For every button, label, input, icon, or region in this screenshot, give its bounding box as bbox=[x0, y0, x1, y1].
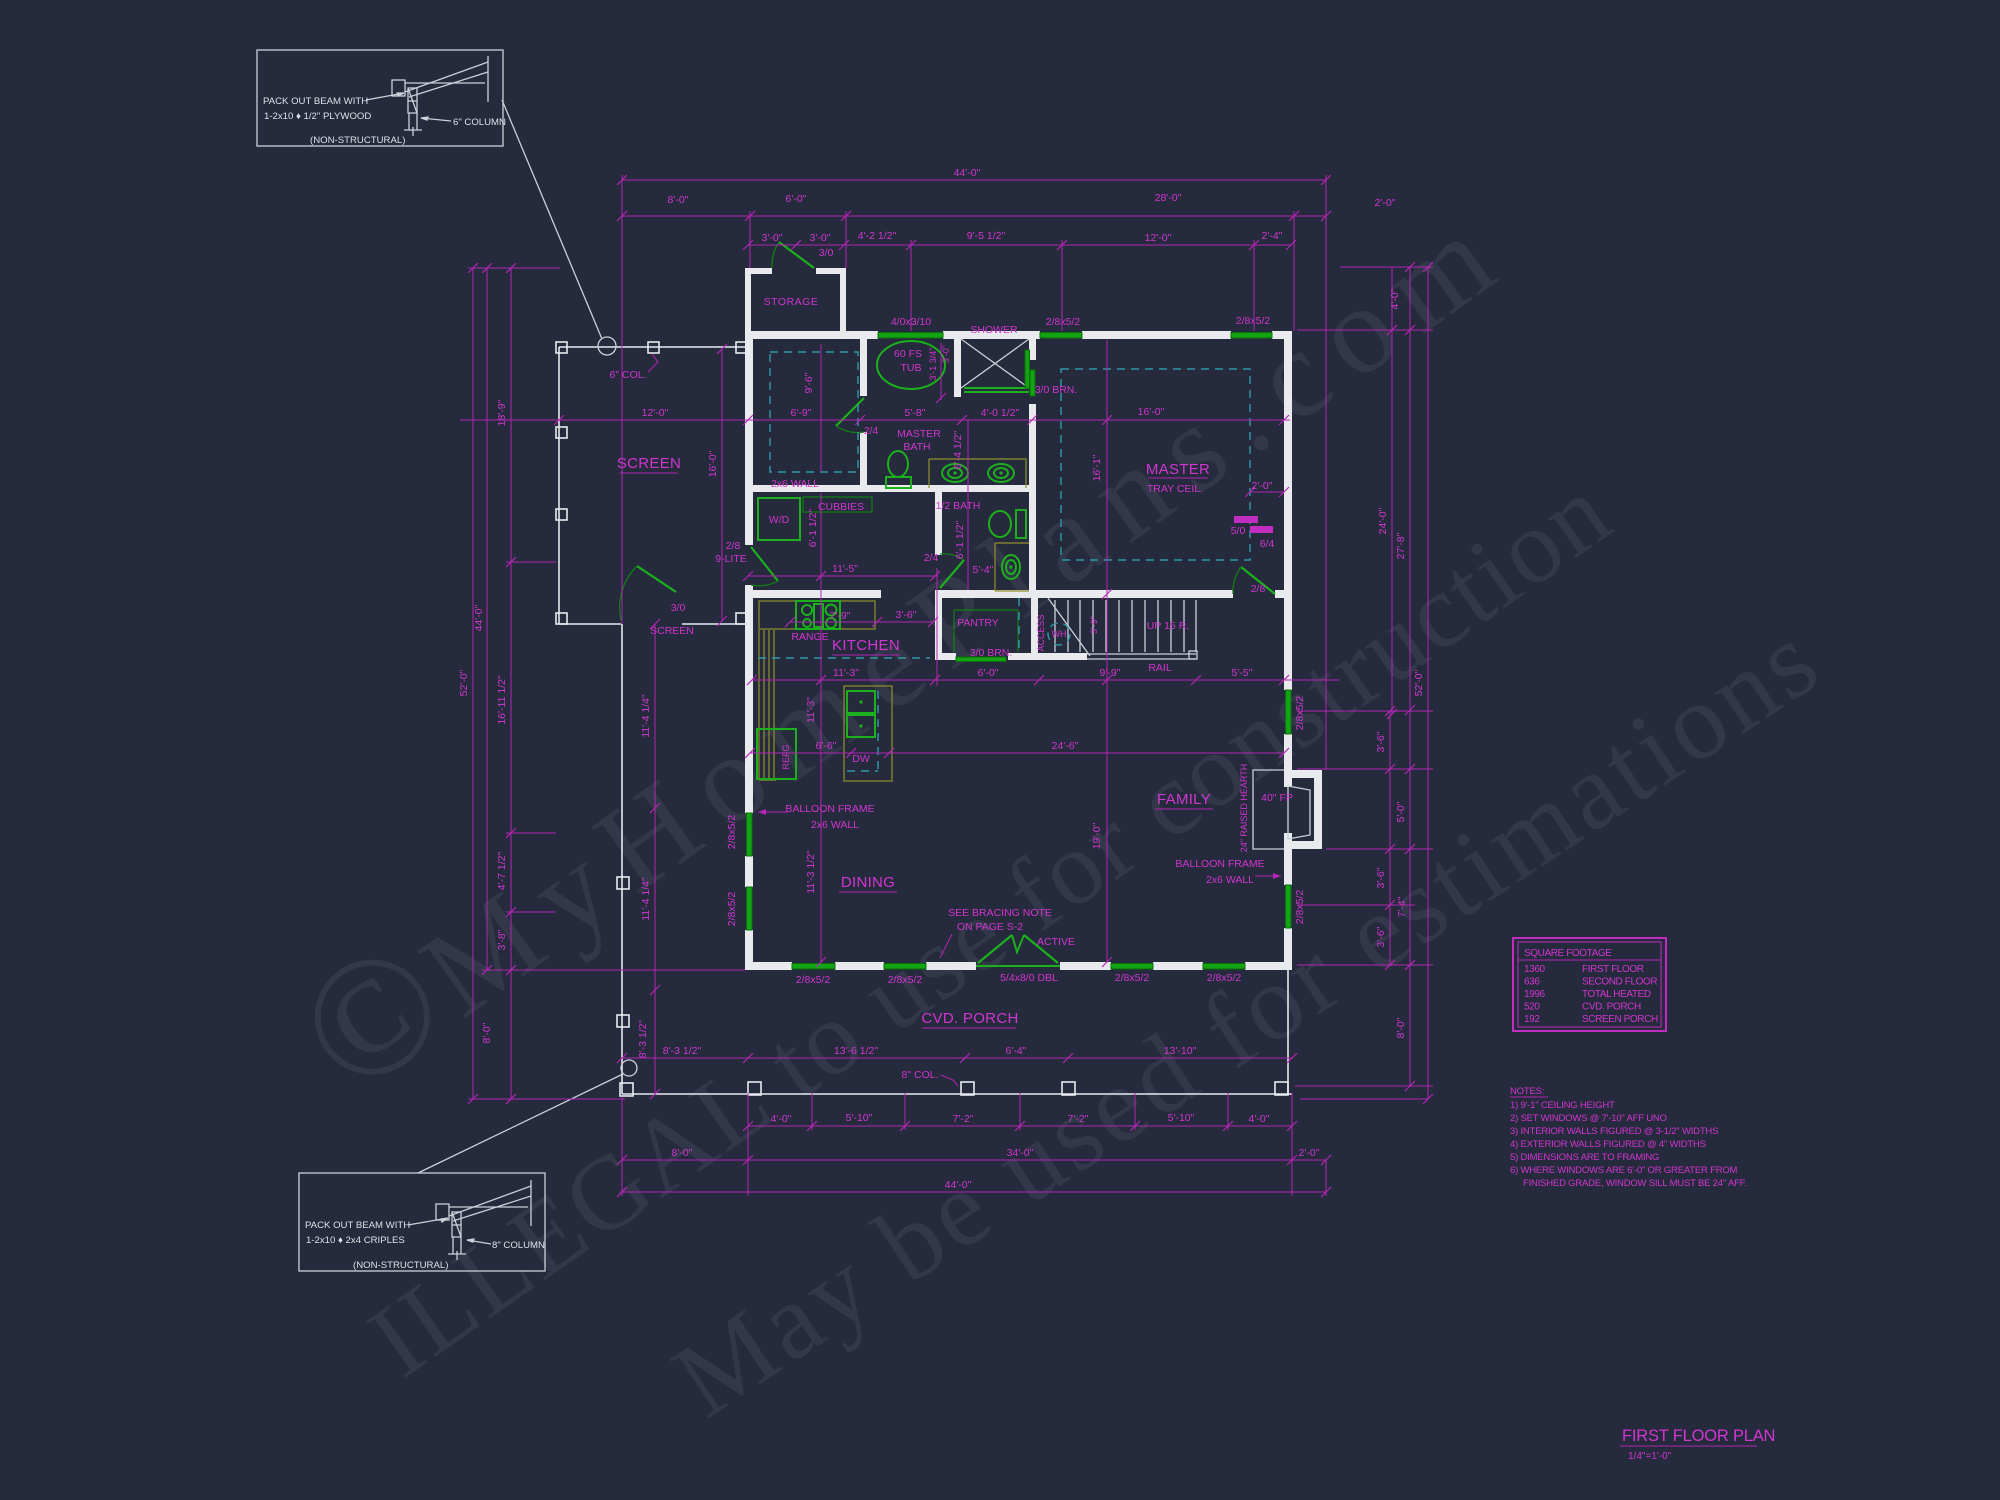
svg-text:2/8x5/2: 2/8x5/2 bbox=[1236, 315, 1271, 327]
svg-text:52'-0": 52'-0" bbox=[458, 669, 470, 696]
svg-text:FINISHED GRADE, WINDOW SILL MU: FINISHED GRADE, WINDOW SILL MUST BE 24" … bbox=[1523, 1178, 1747, 1189]
svg-text:(NON-STRUCTURAL): (NON-STRUCTURAL) bbox=[310, 135, 405, 146]
svg-text:6'-1 1/2": 6'-1 1/2" bbox=[954, 521, 966, 560]
svg-text:BALLOON FRAME: BALLOON FRAME bbox=[1175, 858, 1264, 870]
svg-text:CVD. PORCH: CVD. PORCH bbox=[921, 1010, 1018, 1027]
svg-text:3'-1 3/4": 3'-1 3/4" bbox=[928, 348, 938, 381]
svg-text:5'-5": 5'-5" bbox=[1232, 667, 1253, 679]
svg-text:7'-4": 7'-4" bbox=[1396, 896, 1408, 917]
svg-text:4'-0": 4'-0" bbox=[1249, 1113, 1270, 1125]
svg-text:1996: 1996 bbox=[1524, 989, 1545, 1000]
svg-text:DINING: DINING bbox=[841, 874, 895, 891]
svg-text:3'-6": 3'-6" bbox=[1375, 867, 1387, 888]
svg-text:3/0: 3/0 bbox=[671, 602, 686, 614]
svg-text:SCREEN PORCH: SCREEN PORCH bbox=[1582, 1014, 1658, 1025]
svg-text:28'-0": 28'-0" bbox=[1155, 192, 1182, 204]
svg-text:2x6 WALL: 2x6 WALL bbox=[771, 478, 819, 490]
svg-text:11'-3": 11'-3" bbox=[833, 667, 859, 679]
svg-text:SCREEN: SCREEN bbox=[617, 455, 681, 472]
svg-text:44'-0": 44'-0" bbox=[473, 604, 485, 631]
svg-text:3/0: 3/0 bbox=[819, 247, 834, 259]
svg-text:9-LITE: 9-LITE bbox=[715, 553, 747, 565]
svg-text:520: 520 bbox=[1524, 1002, 1540, 1013]
svg-text:2'-0": 2'-0" bbox=[1252, 480, 1273, 492]
svg-text:2/4: 2/4 bbox=[924, 552, 939, 564]
svg-text:192: 192 bbox=[1524, 1014, 1540, 1025]
svg-text:5'-8": 5'-8" bbox=[905, 407, 926, 419]
svg-text:6" COL.: 6" COL. bbox=[610, 369, 647, 381]
svg-text:CUBBIES: CUBBIES bbox=[818, 501, 864, 513]
svg-text:16'-1": 16'-1" bbox=[1091, 454, 1103, 481]
svg-text:MASTER: MASTER bbox=[897, 428, 941, 440]
svg-text:19'-0": 19'-0" bbox=[1091, 822, 1103, 849]
svg-text:1/2 BATH: 1/2 BATH bbox=[936, 500, 981, 512]
svg-text:2) SET WINDOWS @ 7'-10" AFF UN: 2) SET WINDOWS @ 7'-10" AFF UNO bbox=[1510, 1113, 1667, 1124]
svg-text:3'-0": 3'-0" bbox=[941, 345, 951, 363]
svg-text:2/8x5/2: 2/8x5/2 bbox=[1294, 696, 1306, 731]
svg-text:3'-8": 3'-8" bbox=[496, 929, 508, 950]
svg-text:11'-3 1/2": 11'-3 1/2" bbox=[805, 850, 817, 894]
svg-text:2/8x5/2: 2/8x5/2 bbox=[1294, 890, 1306, 925]
svg-text:SHOWER: SHOWER bbox=[970, 324, 1018, 336]
svg-text:5'-10": 5'-10" bbox=[1168, 1112, 1195, 1124]
svg-text:PANTRY: PANTRY bbox=[957, 617, 999, 629]
svg-text:8'-3 1/2": 8'-3 1/2" bbox=[637, 1020, 649, 1059]
svg-text:(NON-STRUCTURAL): (NON-STRUCTURAL) bbox=[353, 1260, 448, 1271]
svg-text:ON PAGE S-2: ON PAGE S-2 bbox=[957, 921, 1023, 933]
svg-text:5'-10": 5'-10" bbox=[846, 1112, 873, 1124]
svg-text:1) 9'-1" CEILING HEIGHT: 1) 9'-1" CEILING HEIGHT bbox=[1510, 1100, 1615, 1111]
svg-text:TOTAL HEATED: TOTAL HEATED bbox=[1582, 989, 1651, 1000]
svg-text:8'-0": 8'-0" bbox=[481, 1022, 493, 1043]
svg-text:MASTER: MASTER bbox=[1146, 461, 1210, 478]
svg-text:SEE BRACING NOTE: SEE BRACING NOTE bbox=[948, 907, 1052, 919]
svg-text:8'-0": 8'-0" bbox=[668, 194, 689, 206]
svg-text:ACTIVE: ACTIVE bbox=[1037, 936, 1075, 948]
svg-text:44'-0": 44'-0" bbox=[954, 167, 981, 179]
svg-text:BATH: BATH bbox=[903, 441, 930, 453]
svg-text:4'-7 1/2": 4'-7 1/2" bbox=[496, 852, 508, 891]
svg-text:27'-8": 27'-8" bbox=[1395, 532, 1407, 559]
svg-text:12'-0": 12'-0" bbox=[642, 407, 669, 419]
svg-text:FIRST FLOOR PLAN: FIRST FLOOR PLAN bbox=[1622, 1427, 1775, 1445]
svg-text:40" FP: 40" FP bbox=[1261, 792, 1293, 804]
svg-text:24" RAISED HEARTH: 24" RAISED HEARTH bbox=[1239, 764, 1249, 853]
svg-text:SQUARE FOOTAGE: SQUARE FOOTAGE bbox=[1524, 948, 1612, 959]
svg-text:60 FS: 60 FS bbox=[894, 348, 922, 360]
svg-text:ACCESS: ACCESS bbox=[1036, 614, 1046, 651]
svg-text:2x6 WALL: 2x6 WALL bbox=[811, 819, 859, 831]
svg-text:CVD. PORCH: CVD. PORCH bbox=[1582, 1002, 1641, 1013]
svg-text:11'-4 1/4": 11'-4 1/4" bbox=[640, 877, 652, 921]
svg-text:3'-0": 3'-0" bbox=[762, 232, 783, 244]
svg-text:3'-6": 3'-6" bbox=[896, 609, 917, 621]
svg-text:FIRST FLOOR: FIRST FLOOR bbox=[1582, 964, 1644, 975]
svg-text:6'-4 1/2": 6'-4 1/2" bbox=[952, 431, 964, 470]
svg-text:18'-9": 18'-9" bbox=[496, 399, 508, 426]
svg-text:24'-0": 24'-0" bbox=[1377, 507, 1389, 534]
svg-text:8'-0": 8'-0" bbox=[1395, 1017, 1407, 1038]
svg-text:24'-6": 24'-6" bbox=[1052, 740, 1079, 752]
svg-text:3'-6": 3'-6" bbox=[1375, 731, 1387, 752]
svg-text:4'-0 1/2": 4'-0 1/2" bbox=[981, 407, 1020, 419]
svg-text:6/4: 6/4 bbox=[1260, 538, 1275, 550]
svg-text:11'-4 1/4": 11'-4 1/4" bbox=[640, 694, 652, 738]
svg-text:6'-1 1/2": 6'-1 1/2" bbox=[807, 509, 819, 548]
svg-text:KITCHEN: KITCHEN bbox=[832, 637, 900, 654]
svg-text:2'-0": 2'-0" bbox=[1375, 197, 1396, 209]
svg-text:11'-3": 11'-3" bbox=[805, 697, 817, 723]
svg-text:3/0 BRN.: 3/0 BRN. bbox=[1035, 384, 1078, 396]
svg-text:2/8x5/2: 2/8x5/2 bbox=[796, 974, 831, 986]
svg-text:3) INTERIOR WALLS FIGURED @ 3-: 3) INTERIOR WALLS FIGURED @ 3-1/2" WIDTH… bbox=[1510, 1126, 1718, 1137]
svg-text:34'-0": 34'-0" bbox=[1007, 1147, 1034, 1159]
svg-text:PACK OUT BEAM WITH: PACK OUT BEAM WITH bbox=[263, 96, 368, 107]
svg-text:3'-6": 3'-6" bbox=[1375, 926, 1387, 947]
svg-text:BALLOON FRAME: BALLOON FRAME bbox=[785, 803, 874, 815]
svg-text:2x6 WALL: 2x6 WALL bbox=[1206, 874, 1254, 886]
svg-text:1/4"=1'-0": 1/4"=1'-0" bbox=[1628, 1451, 1672, 1462]
svg-text:2/8x5/2: 2/8x5/2 bbox=[726, 815, 738, 850]
svg-text:2'-4": 2'-4" bbox=[1262, 230, 1283, 242]
svg-text:11'-5": 11'-5" bbox=[832, 563, 858, 575]
svg-text:4'-0": 4'-0" bbox=[771, 1113, 792, 1125]
svg-text:6'-9": 6'-9" bbox=[791, 407, 812, 419]
svg-text:2/8x5/2: 2/8x5/2 bbox=[1115, 972, 1150, 984]
svg-text:6'-4": 6'-4" bbox=[1006, 1045, 1027, 1057]
svg-text:6'-6": 6'-6" bbox=[816, 740, 837, 752]
svg-text:RAIL: RAIL bbox=[1148, 662, 1172, 674]
svg-text:44'-0": 44'-0" bbox=[945, 1179, 972, 1191]
svg-text:8'-3 1/2": 8'-3 1/2" bbox=[663, 1045, 702, 1057]
svg-text:FAMILY: FAMILY bbox=[1157, 791, 1211, 808]
svg-text:PACK OUT BEAM WITH: PACK OUT BEAM WITH bbox=[305, 1220, 410, 1231]
svg-text:5) DIMENSIONS ARE TO FRAMING: 5) DIMENSIONS ARE TO FRAMING bbox=[1510, 1152, 1659, 1163]
svg-text:3'-0": 3'-0" bbox=[810, 232, 831, 244]
svg-text:16'-0": 16'-0" bbox=[707, 450, 719, 477]
svg-text:SECOND FLOOR: SECOND FLOOR bbox=[1582, 977, 1657, 988]
svg-text:2/4: 2/4 bbox=[864, 425, 879, 437]
svg-text:8'-0": 8'-0" bbox=[672, 1147, 693, 1159]
svg-text:1360: 1360 bbox=[1524, 964, 1545, 975]
svg-text:SCREEN: SCREEN bbox=[650, 625, 694, 637]
svg-text:4'-0": 4'-0" bbox=[1389, 288, 1401, 309]
svg-text:UP 15 R.: UP 15 R. bbox=[1147, 620, 1189, 632]
svg-text:TUB: TUB bbox=[901, 362, 922, 374]
svg-text:2/8x5/2: 2/8x5/2 bbox=[726, 892, 738, 927]
svg-text:NOTES:: NOTES: bbox=[1510, 1086, 1544, 1097]
svg-text:16'-11 1/2": 16'-11 1/2" bbox=[496, 675, 508, 725]
svg-text:2/8x5/2: 2/8x5/2 bbox=[1207, 972, 1242, 984]
svg-text:7'-9": 7'-9" bbox=[830, 610, 851, 622]
svg-text:5/4x8/0 DBL: 5/4x8/0 DBL bbox=[1000, 972, 1058, 984]
svg-text:636: 636 bbox=[1524, 977, 1540, 988]
svg-text:7'-2": 7'-2" bbox=[1068, 1113, 1089, 1125]
svg-text:REFG: REFG bbox=[781, 744, 791, 769]
svg-text:2/8: 2/8 bbox=[1251, 583, 1266, 595]
svg-text:12'-0": 12'-0" bbox=[1145, 232, 1172, 244]
svg-text:16'-0": 16'-0" bbox=[1138, 406, 1165, 418]
svg-text:1-2x10 ♦ 1/2" PLYWOOD: 1-2x10 ♦ 1/2" PLYWOOD bbox=[264, 111, 371, 122]
svg-text:4'-2 1/2": 4'-2 1/2" bbox=[858, 230, 897, 242]
svg-text:9'-5 1/2": 9'-5 1/2" bbox=[967, 230, 1006, 242]
svg-text:W/D: W/D bbox=[769, 514, 790, 526]
svg-text:7'-2": 7'-2" bbox=[953, 1113, 974, 1125]
svg-text:5'-0": 5'-0" bbox=[1395, 801, 1407, 822]
svg-text:6" COLUMN: 6" COLUMN bbox=[453, 117, 506, 128]
svg-text:1-2x10 ♦ 2x4 CRIPLES: 1-2x10 ♦ 2x4 CRIPLES bbox=[306, 1235, 405, 1246]
svg-text:6'-0": 6'-0" bbox=[978, 667, 999, 679]
svg-text:WH: WH bbox=[1052, 629, 1067, 639]
svg-text:52'-0": 52'-0" bbox=[1413, 669, 1425, 696]
svg-text:2/8x5/2: 2/8x5/2 bbox=[888, 974, 923, 986]
svg-text:5/0: 5/0 bbox=[1231, 525, 1246, 537]
svg-text:6) WHERE WINDOWS ARE 6'-0" OR: 6) WHERE WINDOWS ARE 6'-0" OR GREATER FR… bbox=[1510, 1165, 1738, 1176]
svg-text:2'-0": 2'-0" bbox=[1299, 1147, 1320, 1159]
svg-text:6'-0": 6'-0" bbox=[786, 193, 807, 205]
svg-text:5'-4": 5'-4" bbox=[973, 564, 994, 576]
svg-text:13'-6 1/2": 13'-6 1/2" bbox=[834, 1045, 879, 1057]
svg-text:STORAGE: STORAGE bbox=[764, 296, 819, 308]
svg-text:8" COL.: 8" COL. bbox=[902, 1069, 939, 1081]
svg-text:2/8: 2/8 bbox=[726, 540, 741, 552]
svg-text:2/8x5/2: 2/8x5/2 bbox=[1046, 316, 1081, 328]
svg-text:RANGE: RANGE bbox=[791, 631, 828, 643]
svg-text:4) EXTERIOR WALLS FIGURED @ 4": 4) EXTERIOR WALLS FIGURED @ 4" WIDTHS bbox=[1510, 1139, 1706, 1150]
svg-text:13'-10": 13'-10" bbox=[1164, 1045, 1197, 1057]
svg-text:3'-9": 3'-9" bbox=[1089, 616, 1099, 634]
svg-text:9'-6": 9'-6" bbox=[803, 372, 815, 393]
svg-text:8" COLUMN: 8" COLUMN bbox=[492, 1240, 545, 1251]
svg-text:TRAY CEIL.: TRAY CEIL. bbox=[1147, 483, 1203, 495]
svg-text:DW: DW bbox=[852, 753, 870, 765]
